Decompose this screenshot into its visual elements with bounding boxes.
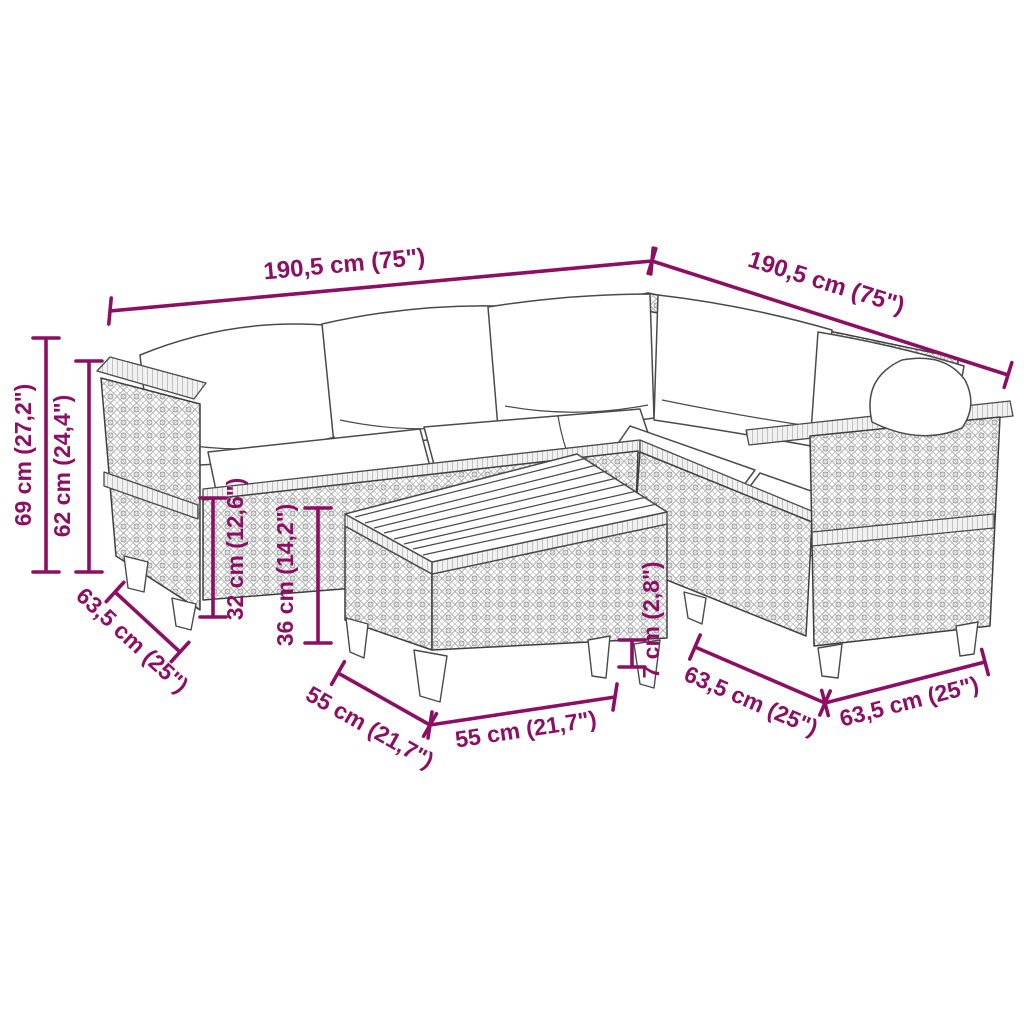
dim-label-table-height: 36 cm (14,2") xyxy=(272,504,298,647)
dim-table-width: 55 cm (21,7") xyxy=(428,684,617,753)
dim-label-table-depth: 55 cm (21,7") xyxy=(301,681,438,774)
table-leg xyxy=(346,618,368,658)
dim-label-back-height: 62 cm (24,4") xyxy=(49,395,75,538)
sofa-leg xyxy=(684,592,706,624)
sofa-leg xyxy=(818,644,842,678)
table-leg xyxy=(414,650,447,702)
dim-label-total-height: 69 cm (27,2") xyxy=(10,384,36,527)
dimension-diagram: 190,5 cm (75") 190,5 cm (75") 69 cm (27,… xyxy=(0,0,1024,1024)
sofa-leg xyxy=(124,556,148,592)
dim-label-overall-width-right: 190,5 cm (75") xyxy=(745,246,908,320)
dim-back-height: 62 cm (24,4") xyxy=(49,361,102,572)
dim-label-leg-height: 7 cm (2,8") xyxy=(638,561,664,678)
sofa-leg xyxy=(172,598,196,630)
table-leg xyxy=(588,636,610,678)
sofa-leg xyxy=(956,622,978,656)
diagram-svg: 190,5 cm (75") 190,5 cm (75") 69 cm (27,… xyxy=(0,0,1024,1024)
dim-sofa-depth-middle: 63,5 cm (25") xyxy=(681,635,831,741)
left-armrest xyxy=(97,357,206,630)
lumbar-cushion xyxy=(870,358,971,435)
dim-label-table-width: 55 cm (21,7") xyxy=(453,706,598,753)
dim-label-seat-height: 32 cm (12,6") xyxy=(222,478,248,621)
dim-sofa-depth-right: 63,5 cm (25") xyxy=(822,649,989,731)
dim-label-overall-width-left: 190,5 cm (75") xyxy=(262,244,426,286)
